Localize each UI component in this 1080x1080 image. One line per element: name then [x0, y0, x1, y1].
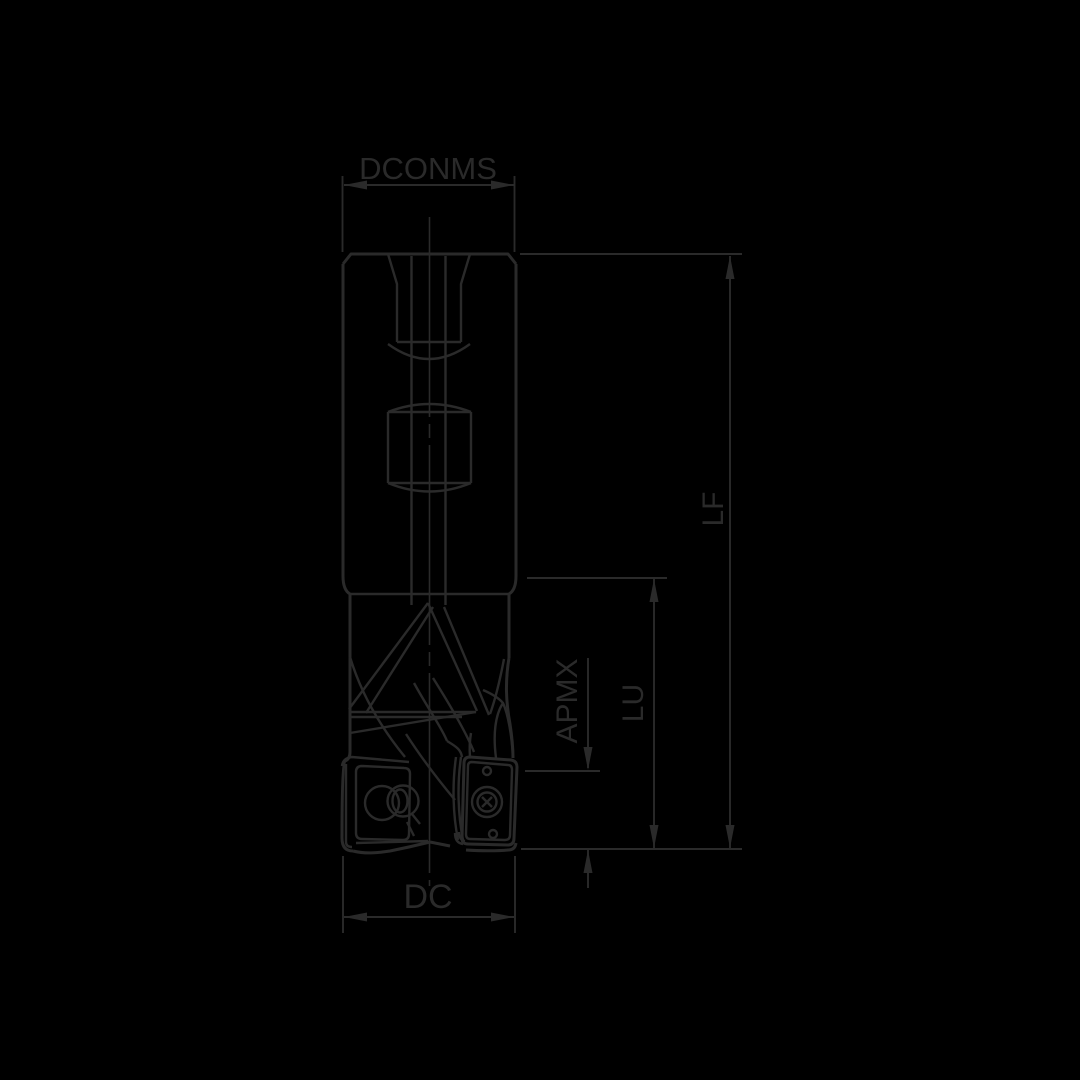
right-insert-dot-top — [483, 767, 491, 775]
right-screw-drive-marks — [482, 797, 492, 807]
dimension-lf: LF — [520, 254, 742, 848]
blade-tip-arch — [495, 703, 513, 758]
flute-v-left-outer — [349, 603, 428, 709]
label-dc: DC — [403, 878, 452, 916]
left-insert-bottom-line — [356, 841, 428, 843]
insert-right — [447, 690, 517, 845]
flute-v-right-inner — [444, 607, 489, 715]
flute-lines — [349, 603, 504, 800]
label-lu: LU — [617, 684, 650, 722]
left-pocket-mark-2 — [412, 814, 420, 824]
right-seat-edge-1 — [454, 757, 458, 840]
left-pocket-top-edge — [342, 757, 409, 766]
label-apmx: APMX — [551, 658, 584, 743]
apmx-arrow-down — [584, 747, 593, 770]
lf-arrow-top — [726, 256, 735, 279]
label-lf: LF — [697, 491, 730, 526]
lu-arrow-top — [650, 579, 659, 602]
lu-arrow-bottom — [650, 825, 659, 848]
insert-left — [342, 757, 428, 847]
left-pocket-inner-edge — [346, 764, 352, 847]
right-pocket-short-edge — [470, 733, 471, 757]
technical-drawing: DCONMS LF LU APMX DC — [0, 0, 1080, 1080]
bottom-center-edge — [430, 842, 450, 846]
dimension-apmx: APMX — [525, 658, 600, 888]
upper-flat-left — [388, 254, 397, 342]
neck-fillet-right — [509, 576, 516, 594]
pocket-back-diagonal — [350, 712, 476, 733]
head-left-edge — [342, 716, 353, 851]
drawing-canvas: DCONMS LF LU APMX DC — [0, 0, 1080, 1080]
upper-flat-right — [461, 254, 470, 342]
label-dconms: DCONMS — [359, 151, 497, 186]
dimension-dconms: DCONMS — [343, 151, 515, 252]
dc-arrow-right — [491, 913, 514, 922]
dc-arrow-left — [344, 913, 367, 922]
flute-v-right-outer — [428, 603, 477, 711]
apmx-arrow-up — [584, 850, 593, 873]
neck-fillet-left — [343, 576, 350, 594]
right-seat-top-curve — [447, 741, 462, 757]
dimension-lu: LU — [527, 578, 667, 848]
lf-arrow-bottom — [726, 825, 735, 848]
right-insert-dot-bottom — [489, 830, 497, 838]
